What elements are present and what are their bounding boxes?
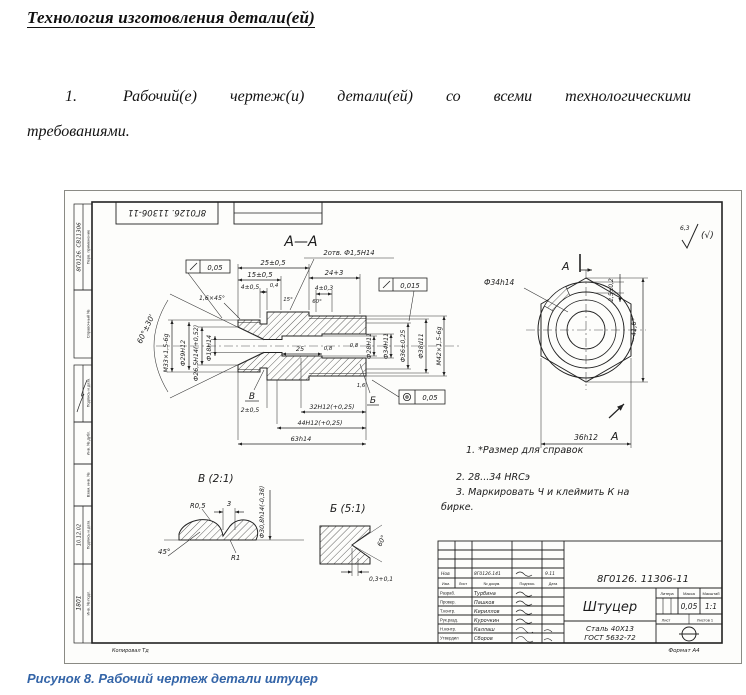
dim-15-05: 15±0,5 (247, 271, 272, 279)
dim-d34h14: Ф34h14 (484, 278, 515, 287)
inv-dubl-label: Инв. № дубл. (86, 431, 91, 456)
detail-v-r05: R0,5 (190, 502, 206, 510)
scan-sheet (65, 191, 742, 664)
detail-v-3: 3 (227, 500, 231, 508)
paragraph-number: 1. (65, 88, 123, 106)
dim-d38: Ф38d11 (418, 333, 425, 358)
section-arrow-a-top: А (561, 260, 570, 273)
role-prover: Провер. (440, 600, 456, 605)
document-page: { "page": { "title": "Технология изготов… (0, 0, 746, 695)
paragraph: 1. Рабочий(е) чертеж(и) детали(ей) со вс… (27, 88, 691, 141)
top-stamp-number: 8Г0126. 11306-11 (128, 207, 206, 217)
note-1: 1. *Размер для справок (466, 445, 584, 456)
name-sborov: Сборов (474, 636, 493, 642)
litera-header: Литера (660, 591, 674, 596)
dim-d36: Ф36±0,25 (400, 330, 407, 363)
angle-15: 15° (283, 297, 293, 303)
roughness-suffix: (√) (701, 230, 714, 241)
figure-caption: Рисунок 8. Рабочий чертеж детали штуцер (27, 671, 318, 686)
header-list: Лист (459, 582, 468, 586)
section-title: А—А (283, 234, 317, 250)
copied-label: Копировал Тд (112, 648, 149, 654)
dim-holes: 2отв. Ф1,5Н14 (323, 249, 374, 257)
technical-drawing: Перв. применение 8Г0126. СВ11306 Справоч… (64, 190, 742, 664)
podpis-data-label-2: Подпись и дата (86, 520, 91, 550)
spravochny-label: Справочный № (86, 310, 91, 339)
masshtab-header: Масштаб (702, 591, 720, 596)
name-turbina: Турбина (474, 591, 496, 597)
detail-v-title: В (2:1) (198, 473, 234, 485)
dim-chamfer: 1,6×45° (199, 294, 225, 302)
note-3: 3. Маркировать Ч и клеймить К на (456, 487, 629, 498)
tol-conc-005: 0,05 (422, 394, 437, 402)
dim-24: 24+3 (325, 269, 344, 277)
doc-number: 8Г0126. 11306-11 (597, 574, 689, 585)
name-pashkov: Пашков (474, 600, 494, 606)
dim-m33: М33×1,5-6g (163, 333, 170, 372)
change-doc: 8Г0126.141 (474, 571, 501, 577)
format-label: Формат А4 (668, 648, 700, 654)
dim-len32: 32Н12(+0,25) (310, 404, 355, 411)
detail-v-r1: R1 (231, 554, 240, 562)
flag-v: В (249, 392, 255, 402)
paragraph-line1: Рабочий(е) чертеж(и) детали(ей) со всеми… (123, 88, 691, 106)
figure-technical-drawing: Перв. применение 8Г0126. СВ11306 Справоч… (64, 190, 742, 664)
header-izm: Изм. (442, 582, 450, 586)
massa-value: 0,05 (681, 602, 698, 611)
perv-primenenie-value: 8Г0126. СВ11306 (77, 222, 83, 272)
note-3b: бирке. (441, 502, 474, 513)
detail-v-d308: Ф30,8h14(-0,38) (259, 486, 266, 539)
dim-len63: 63h14 (291, 435, 312, 443)
page-title: Технология изготовления детали(ей) (27, 8, 315, 28)
vzam-inv-label: Взам. инв. № (86, 473, 91, 498)
section-arrow-a-bottom: А (610, 430, 619, 443)
header-dokum: № докум. (484, 582, 501, 586)
detail-b-03: 0,3+0,1 (369, 576, 393, 583)
detail-v-45: 45° (158, 548, 170, 556)
dim-d18: Ф18Н14 (206, 335, 213, 361)
name-kallash: Каллаш (474, 627, 495, 633)
roughness-08b: 0,8 (350, 343, 359, 349)
angle-60: 60° (312, 299, 322, 305)
role-razrab: Разраб. (440, 591, 455, 596)
material-line2: ГОСТ 5632-72 (584, 633, 636, 642)
dim-d34: Ф34Н11 (383, 333, 390, 359)
header-data: Дата (549, 582, 558, 586)
dim-4-03: 4±0,3 (315, 285, 334, 292)
massa-header: Масса (683, 591, 696, 596)
roughness-16: 1,6 (357, 383, 366, 389)
dim-m42: М42×1,5-6g (436, 326, 443, 365)
header-podpis: Подпись (519, 582, 534, 586)
flag-b: Б (370, 396, 376, 406)
dim-2-05: 2±0,5 (241, 407, 260, 414)
part-name: Штуцер (583, 600, 637, 615)
dim-corners: ~41,6* (630, 317, 638, 342)
dim-flats: 36h12 (574, 433, 598, 442)
role-nkontr: Н.контр. (440, 627, 456, 632)
paragraph-line2: требованиями. (27, 123, 691, 141)
dim-len25: 25 (296, 345, 304, 353)
inv-podl-value: 1801 (76, 595, 83, 610)
dim-d29: Ф29Н12 (180, 340, 187, 366)
name-kurochkin: Курочкин (474, 618, 500, 624)
detail-b-title: Б (5:1) (330, 503, 366, 515)
change-date: 9.11 (545, 571, 555, 577)
name-kirillov: Кириллов (474, 609, 500, 615)
role-tkontr: Т.контр. (440, 609, 455, 614)
scale-value: 1:1 (705, 602, 717, 611)
change-mark: Нов (441, 571, 450, 577)
inv-podl-label: Инв. № подл. (86, 591, 91, 616)
dim-4-05: 4±0,5 (241, 284, 260, 291)
role-utverdil: Утвердил (440, 636, 459, 641)
listov-label: Листов 1 (697, 618, 714, 623)
dim-len44: 44Н12(+0,25) (298, 420, 343, 427)
podpis-data-value: 10.12.02 (77, 524, 83, 546)
roughness-04: 0,4 (270, 283, 279, 289)
dim-25-02: 2,5±0,2 (609, 278, 615, 302)
perv-primenenie-label: Перв. применение (86, 229, 91, 264)
note-2: 2. 28...34 HRCэ (456, 472, 530, 483)
dim-d265: Ф26,5Н14(+0,52) (193, 325, 200, 381)
dim-25-05: 25±0,5 (260, 259, 285, 267)
tol-runout-005: 0,05 (207, 264, 222, 272)
material-line1: Сталь 40X13 (586, 624, 634, 633)
list-label: Лист (662, 618, 671, 623)
dim-d28: Ф28Н11 (366, 333, 373, 359)
roughness-08a: 0,8 (324, 346, 333, 352)
roughness-value: 6,3 (680, 225, 690, 232)
role-rukrazd: Рук.разд. (440, 618, 458, 623)
tol-parallel-0015: 0,015 (400, 282, 419, 290)
